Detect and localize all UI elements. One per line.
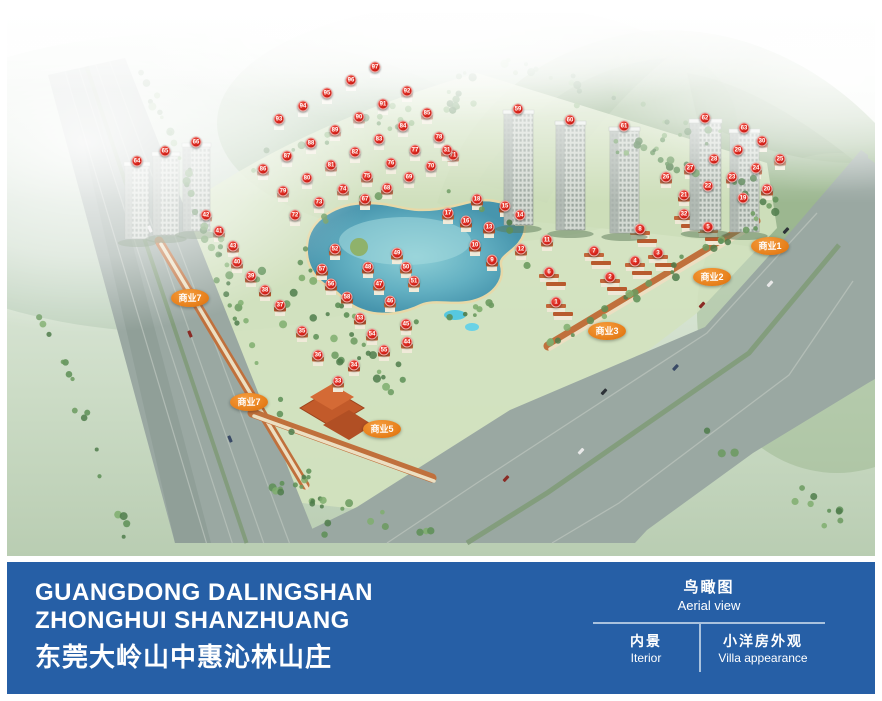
current-view-label-en: Aerial view [593,597,825,614]
unit-marker: 88 [306,138,317,149]
unit-marker: 50 [401,262,412,273]
unit-marker: 92 [402,86,413,97]
unit-marker: 87 [282,151,293,162]
unit-marker: 22 [703,181,714,192]
unit-marker: 1 [551,297,562,308]
unit-marker: 60 [565,115,576,126]
tab-interior-label-en: Iterior [593,650,699,666]
unit-marker: 2 [605,272,616,283]
unit-marker: 56 [326,279,337,290]
unit-marker: 96 [346,75,357,86]
unit-marker: 45 [401,319,412,330]
unit-marker: 66 [191,137,202,148]
unit-marker: 30 [757,136,768,147]
unit-marker: 48 [363,262,374,273]
unit-marker: 75 [362,171,373,182]
unit-marker: 6 [544,267,555,278]
unit-marker: 17 [443,208,454,219]
unit-marker: 13 [484,222,495,233]
tab-interior[interactable]: 内景 Iterior [593,624,699,672]
unit-marker: 94 [298,101,309,112]
unit-marker: 62 [700,113,711,124]
aerial-view-image: 9796959493929190898887868584838281807978… [7,13,875,556]
unit-marker: 4 [630,256,641,267]
unit-marker: 93 [274,114,285,125]
unit-marker: 3 [653,248,664,259]
unit-marker: 63 [739,123,750,134]
unit-marker: 24 [751,163,762,174]
unit-marker: 72 [290,210,301,221]
unit-marker: 15 [500,201,511,212]
unit-marker: 46 [385,296,396,307]
unit-marker: 80 [302,173,313,184]
unit-marker: 85 [422,108,433,119]
commercial-label: 商业3 [588,322,626,340]
unit-marker: 28 [709,154,720,165]
project-titles: GUANGDONG DALINGSHAN ZHONGHUI SHANZHUANG… [35,579,373,672]
unit-marker: 53 [355,313,366,324]
unit-marker: 59 [513,104,524,115]
unit-marker: 16 [461,216,472,227]
unit-marker: 83 [374,134,385,145]
unit-marker: 89 [330,125,341,136]
unit-marker: 38 [260,285,271,296]
unit-marker: 91 [378,99,389,110]
unit-marker: 27 [685,163,696,174]
unit-marker: 14 [515,210,526,221]
tab-villa-appearance[interactable]: 小洋房外观 Villa appearance [699,624,825,672]
commercial-label: 商业1 [751,237,789,255]
unit-marker: 35 [297,326,308,337]
unit-marker: 18 [472,194,483,205]
unit-marker: 32 [679,209,690,220]
unit-marker: 21 [679,190,690,201]
unit-marker: 33 [333,376,344,387]
unit-marker: 82 [350,147,361,158]
commercial-label: 商业7 [171,289,209,307]
unit-marker: 95 [322,88,333,99]
unit-marker: 40 [232,257,243,268]
unit-marker: 36 [313,350,324,361]
unit-marker: 58 [342,292,353,303]
unit-marker: 25 [775,154,786,165]
tab-villa-appearance-label-cn: 小洋房外观 [701,632,825,650]
unit-marker: 55 [379,345,390,356]
unit-marker: 65 [160,146,171,157]
unit-marker: 57 [317,264,328,275]
unit-marker: 44 [402,337,413,348]
unit-marker: 37 [275,300,286,311]
unit-marker: 29 [733,145,744,156]
unit-marker: 61 [619,121,630,132]
unit-marker: 49 [392,248,403,259]
unit-marker: 84 [398,121,409,132]
unit-marker: 26 [661,172,672,183]
unit-marker: 68 [382,183,393,194]
unit-marker: 43 [228,241,239,252]
unit-marker: 54 [367,329,378,340]
unit-marker: 77 [410,145,421,156]
project-title-cn: 东莞大岭山中惠沁林山庄 [35,642,373,672]
commercial-label: 商业7 [230,393,268,411]
unit-marker: 51 [409,276,420,287]
unit-marker: 11 [542,235,553,246]
unit-marker: 9 [487,255,498,266]
project-title-en-line1: GUANGDONG DALINGSHAN [35,579,373,607]
unit-marker: 19 [738,193,749,204]
unit-marker: 97 [370,62,381,73]
tab-villa-appearance-label-en: Villa appearance [701,650,825,666]
project-title-en-line2: ZHONGHUI SHANZHUANG [35,607,373,635]
unit-marker: 86 [258,164,269,175]
unit-marker: 74 [338,184,349,195]
unit-marker: 67 [360,194,371,205]
unit-marker: 79 [278,186,289,197]
unit-marker: 90 [354,112,365,123]
current-view-label-cn: 鸟瞰图 [593,578,825,597]
unit-marker: 52 [330,244,341,255]
unit-marker: 8 [635,224,646,235]
unit-marker: 39 [246,271,257,282]
brochure-page: 9796959493929190898887868584838281807978… [0,0,882,701]
unit-marker: 64 [132,156,143,167]
commercial-label: 商业5 [363,420,401,438]
footer-bar: GUANGDONG DALINGSHAN ZHONGHUI SHANZHUANG… [7,562,875,694]
commercial-label: 商业2 [693,268,731,286]
unit-marker: 10 [470,240,481,251]
aerial-render-scene [7,13,875,556]
view-nav: 鸟瞰图 Aerial view 内景 Iterior 小洋房外观 Villa a… [593,578,825,672]
unit-marker: 20 [762,184,773,195]
unit-marker: 23 [727,172,738,183]
unit-marker: 42 [201,210,212,221]
unit-marker: 47 [374,279,385,290]
unit-marker: 31 [442,145,453,156]
unit-marker: 81 [326,160,337,171]
unit-marker: 34 [349,360,360,371]
unit-marker: 7 [589,246,600,257]
unit-marker: 73 [314,197,325,208]
unit-marker: 41 [214,226,225,237]
nav-tabs-row: 内景 Iterior 小洋房外观 Villa appearance [593,624,825,672]
tab-interior-label-cn: 内景 [593,632,699,650]
unit-marker: 78 [434,132,445,143]
unit-marker: 69 [404,172,415,183]
unit-marker: 76 [386,158,397,169]
unit-marker: 12 [516,244,527,255]
unit-marker: 5 [703,222,714,233]
unit-marker: 70 [426,161,437,172]
